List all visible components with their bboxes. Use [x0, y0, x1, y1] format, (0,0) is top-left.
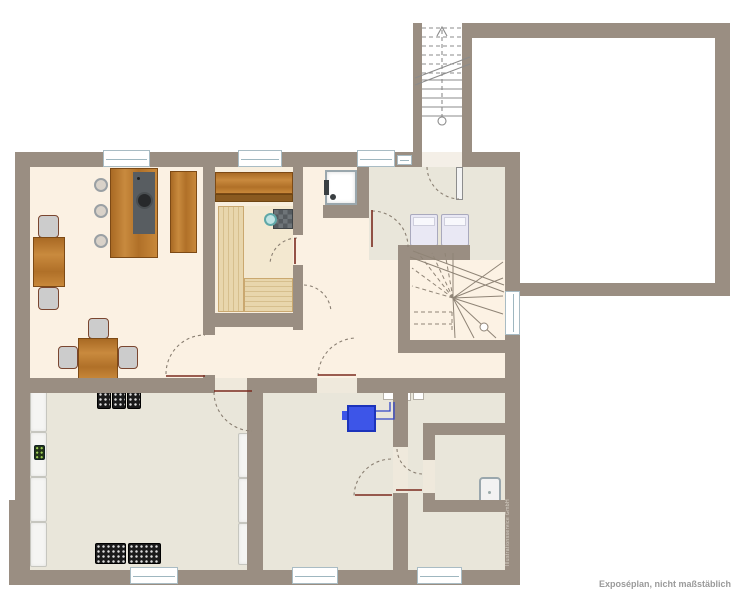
kitchen-sink — [136, 192, 153, 209]
boiler-unit — [347, 405, 376, 432]
wall-divider-bl — [247, 378, 263, 585]
wall-shower-niche — [323, 205, 369, 218]
wall-stairhall-bottom — [398, 340, 505, 353]
threshold-inner-room-door — [423, 460, 435, 493]
threshold-room-bm — [317, 378, 357, 393]
wall-ext-stair-right — [462, 23, 472, 167]
wall-stairhall-top — [398, 245, 470, 260]
watermark-text: Illustrationsservice GmbH — [505, 499, 511, 566]
window — [505, 291, 520, 335]
shelf-unit — [30, 387, 47, 432]
window — [130, 567, 178, 584]
shower-fixture-icon — [324, 180, 329, 195]
window — [357, 150, 395, 167]
chair — [38, 287, 59, 310]
wall-inner-room-left-a — [423, 423, 435, 460]
wall-mid-a — [15, 378, 211, 393]
wall-inner-room-bottom — [423, 500, 505, 512]
storage-crate — [128, 543, 161, 564]
threshold-bm-br-door — [393, 447, 408, 493]
shower-tray — [325, 170, 357, 205]
shower-drain — [330, 194, 336, 200]
dryer-appliance — [441, 214, 469, 246]
plan-caption: Exposéplan, nicht maßstäblich — [431, 579, 731, 589]
faucet-icon — [137, 177, 140, 180]
threshold-kitchen-door — [203, 335, 215, 375]
sidelight-window — [397, 155, 412, 165]
storage-crate — [112, 391, 126, 409]
tall-cabinet — [170, 171, 197, 253]
wall-bigroom-bottom — [520, 283, 730, 296]
sauna-bench — [215, 172, 293, 194]
wall-mid-c — [357, 378, 520, 393]
shelf-unit — [30, 477, 47, 522]
shelf-unit — [30, 522, 47, 567]
wall-sauna-bottom — [203, 313, 303, 327]
entrance-door-leaf — [456, 167, 463, 200]
wall-stairhall-left — [398, 250, 410, 340]
wall-sauna-right-a — [293, 167, 303, 235]
freezer-dot — [488, 491, 491, 494]
parquet-floor — [218, 206, 244, 312]
threshold-entrance-door — [422, 152, 462, 167]
wall-left — [15, 152, 30, 585]
floor-stair-hall — [410, 260, 505, 340]
floor-plan: Illustrationsservice GmbH Exposéplan, ni… — [0, 0, 741, 600]
wall-ext-stair-left — [413, 23, 422, 152]
storage-crate — [97, 391, 111, 409]
threshold-room-bl — [211, 378, 247, 393]
chair — [58, 346, 78, 369]
wall-bigroom-top — [462, 23, 730, 38]
floor-hall-south — [398, 353, 505, 378]
chair — [38, 215, 59, 238]
bar-stool — [94, 178, 108, 192]
wall-divider-br-bottom — [393, 493, 408, 570]
wall-top-right-seg — [472, 152, 505, 167]
wall-inner-room-top — [423, 423, 505, 435]
bar-stool — [94, 234, 108, 248]
washer-appliance — [410, 214, 438, 246]
dining-table — [78, 338, 118, 380]
chair — [118, 346, 138, 369]
window — [292, 567, 338, 584]
window — [103, 150, 150, 167]
wall-bigroom-right — [715, 23, 730, 296]
sauna-bucket — [264, 213, 277, 226]
dining-table-small — [33, 237, 65, 287]
wall-kitchen-divider — [203, 167, 215, 335]
wall-divider-br-top — [393, 378, 408, 447]
parquet-floor — [244, 278, 293, 312]
window — [238, 150, 282, 167]
bar-stool — [94, 204, 108, 218]
storage-crate — [95, 543, 126, 564]
chair — [88, 318, 109, 339]
boiler-valve — [342, 411, 347, 420]
bottle-crate — [34, 445, 45, 460]
sauna-bench-edge — [215, 194, 293, 202]
wall-mid-b — [263, 378, 317, 393]
storage-crate — [127, 391, 141, 409]
